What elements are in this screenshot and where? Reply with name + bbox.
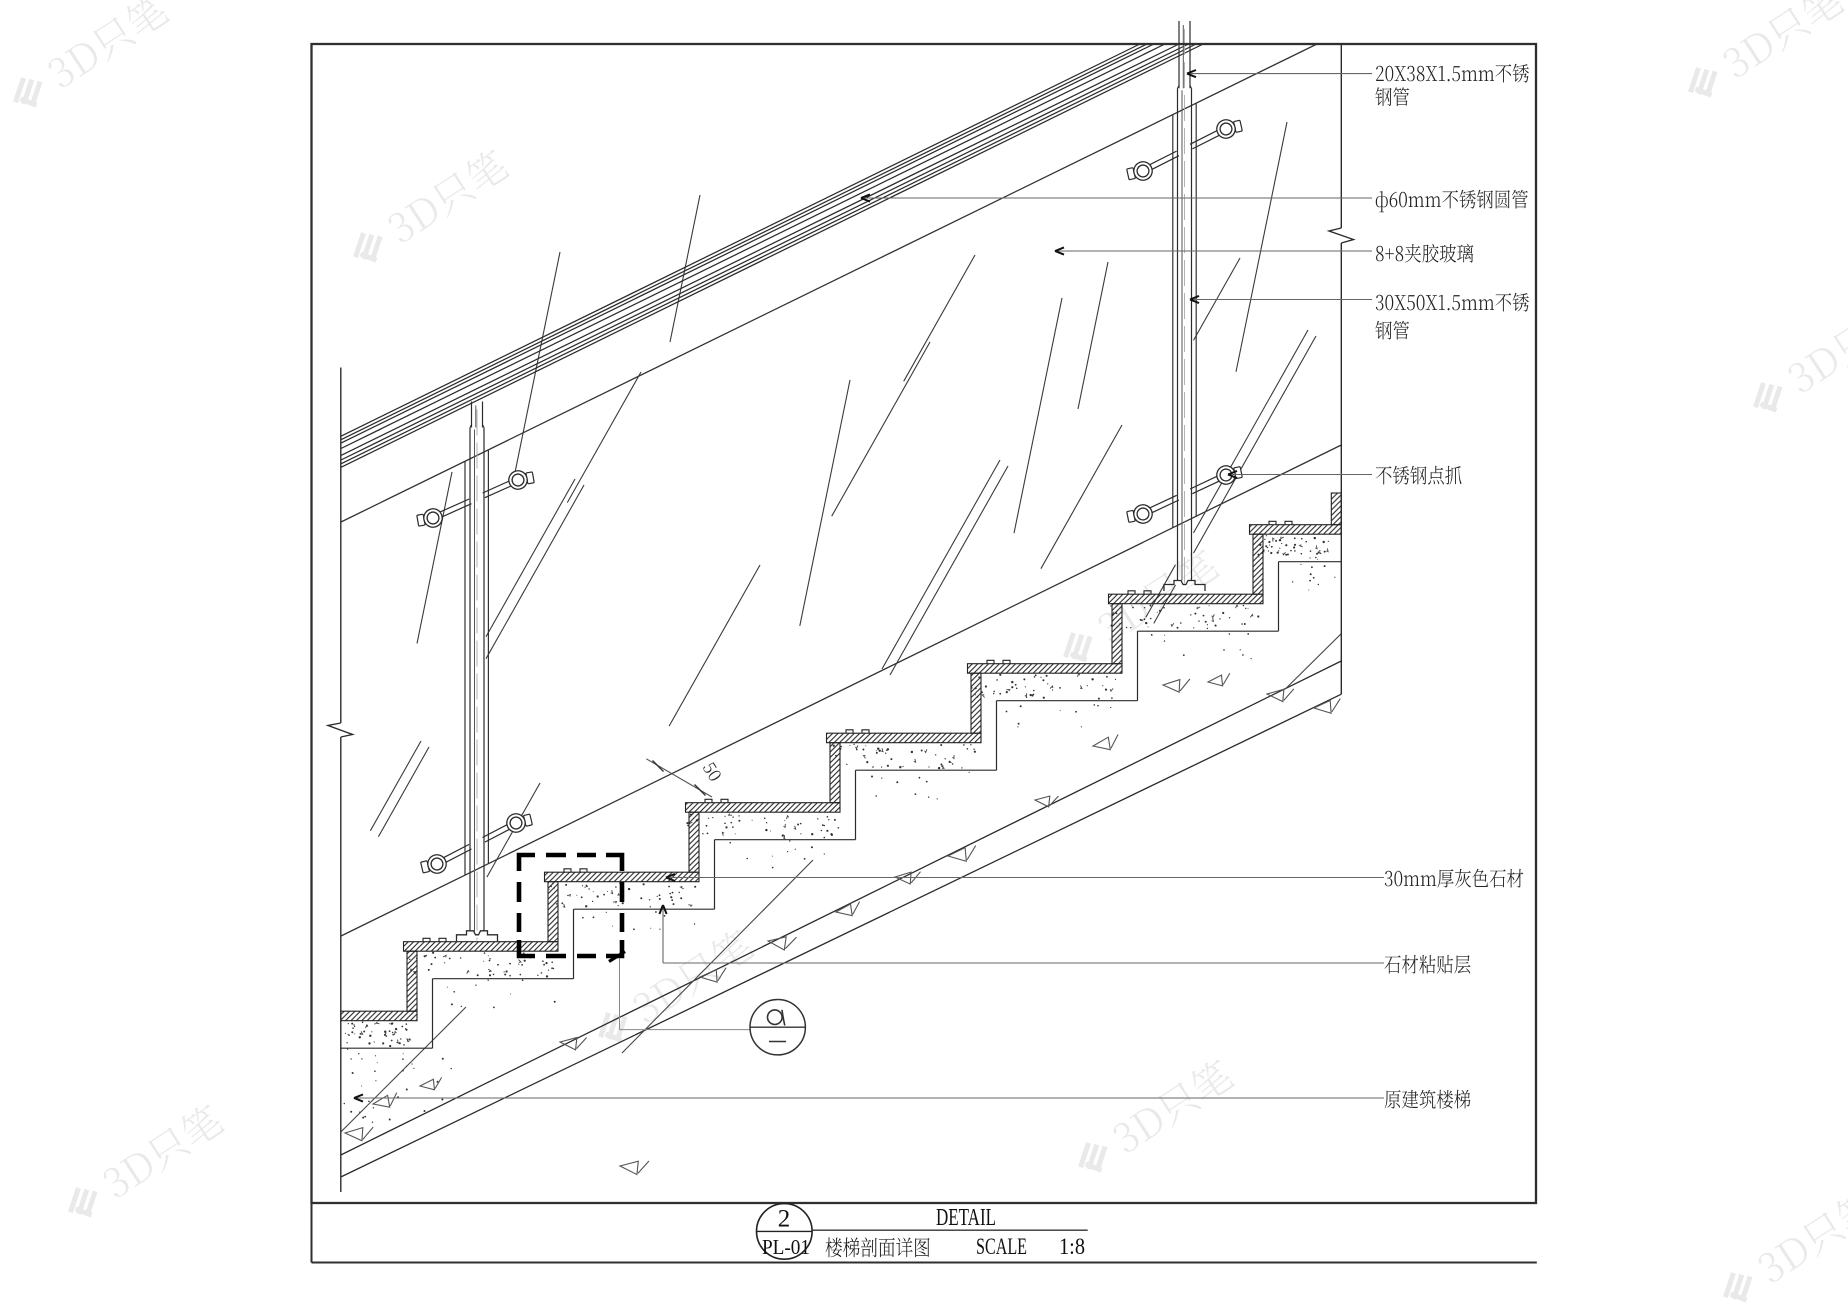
svg-text:1:8: 1:8 xyxy=(1059,1234,1085,1259)
svg-text:2: 2 xyxy=(778,1206,791,1233)
svg-text:SCALE: SCALE xyxy=(976,1234,1027,1259)
svg-text:DETAIL: DETAIL xyxy=(936,1205,996,1231)
svg-text:PL-01: PL-01 xyxy=(762,1235,810,1259)
